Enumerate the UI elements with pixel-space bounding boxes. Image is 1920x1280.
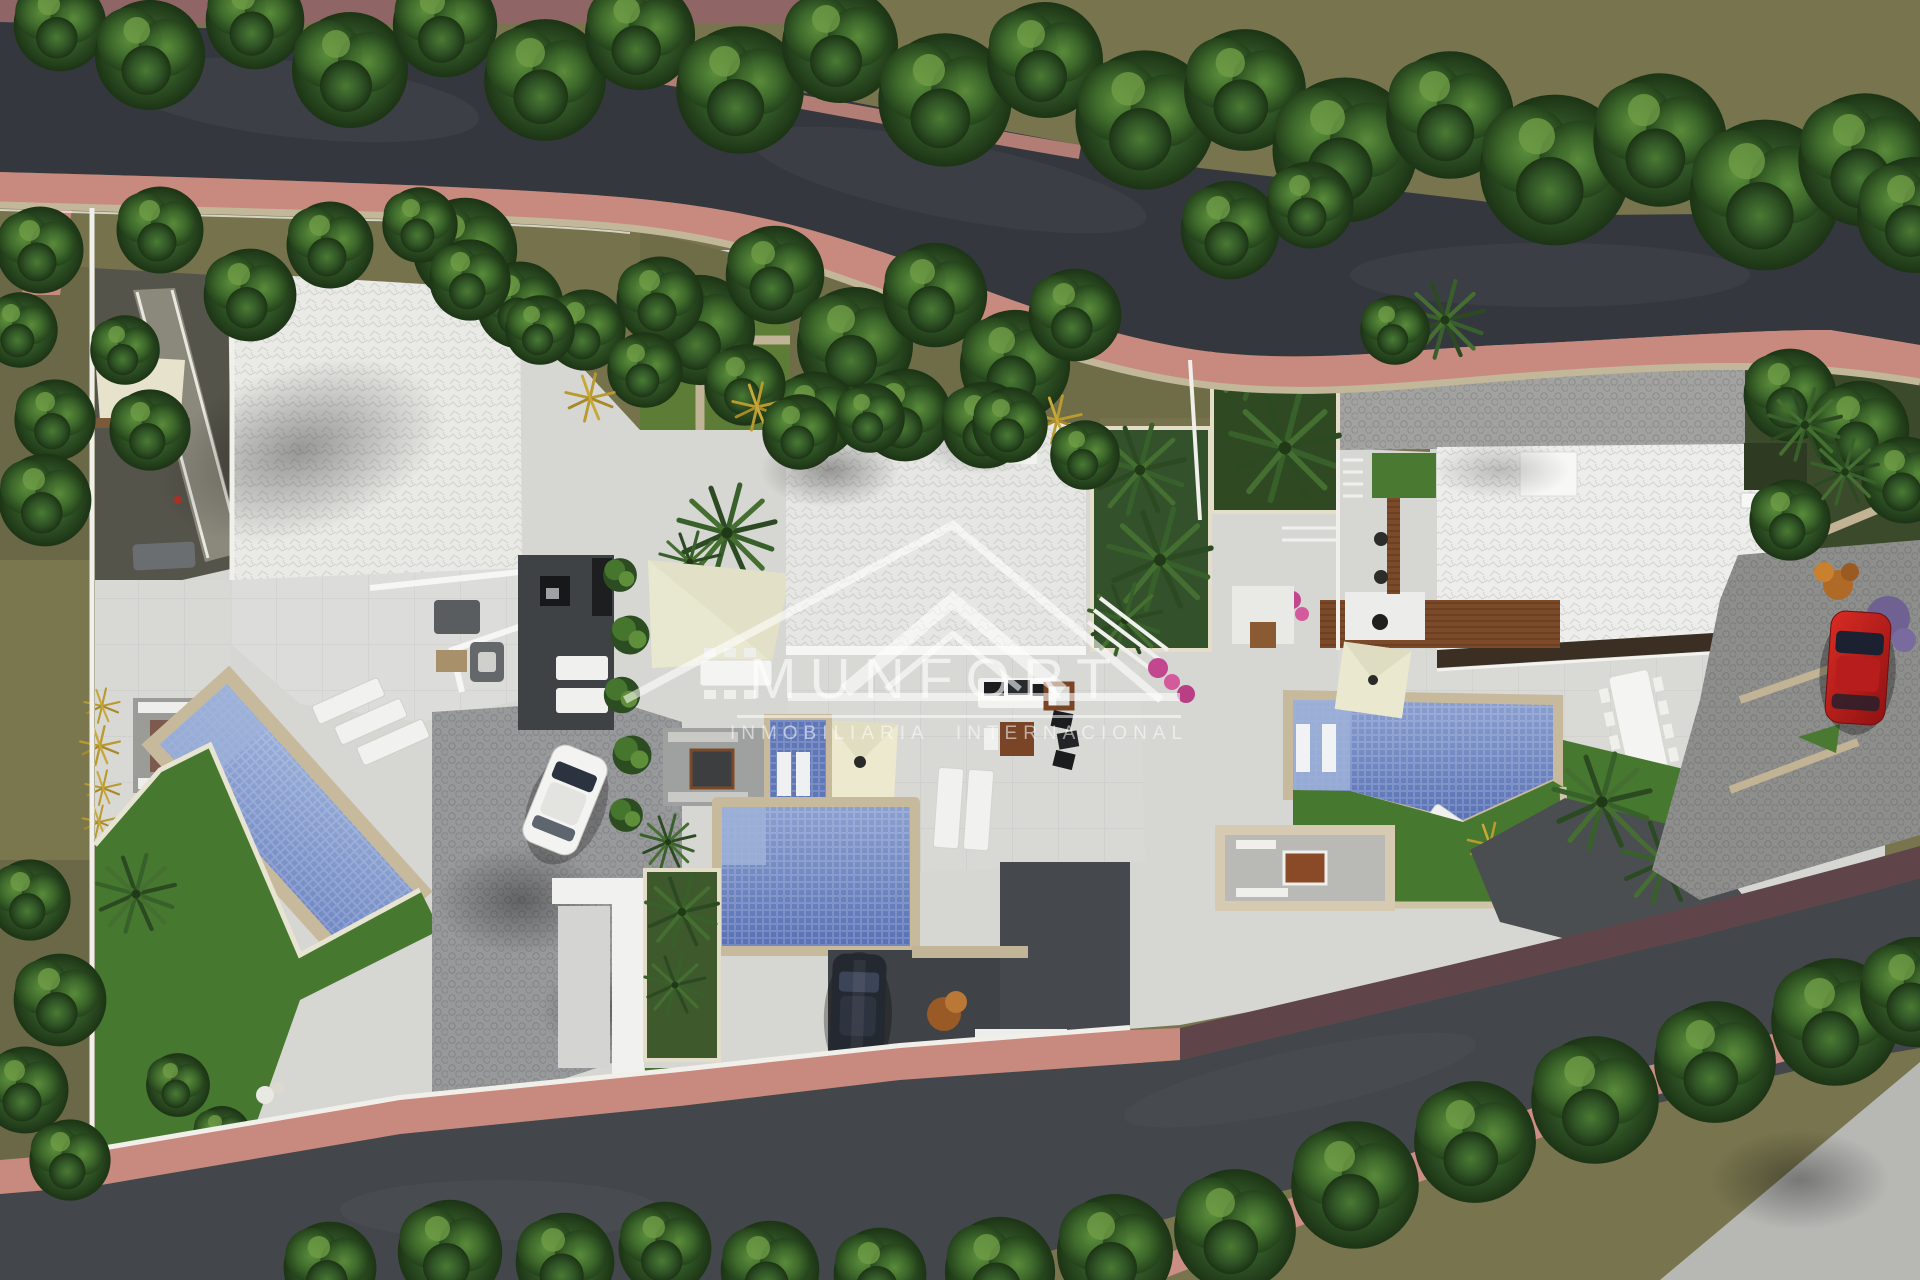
parasol (822, 720, 898, 804)
firepit-lounge (663, 728, 767, 806)
garden-bed (645, 870, 719, 1060)
villa1-garage (552, 878, 644, 1076)
site-plan-render (0, 0, 1920, 1280)
garden-bench (132, 541, 195, 570)
aerial-render-three-villas: MUNFORT INMOBILIARIA INTERNACIONAL (0, 0, 1920, 1280)
brown-table (1000, 722, 1034, 756)
sofa (434, 600, 480, 634)
coffee-table (436, 650, 467, 672)
villa2-pool (712, 797, 920, 956)
villa2-spa (764, 714, 832, 809)
villa3-firepit (1220, 830, 1390, 906)
villa3-parasol (1335, 642, 1412, 719)
